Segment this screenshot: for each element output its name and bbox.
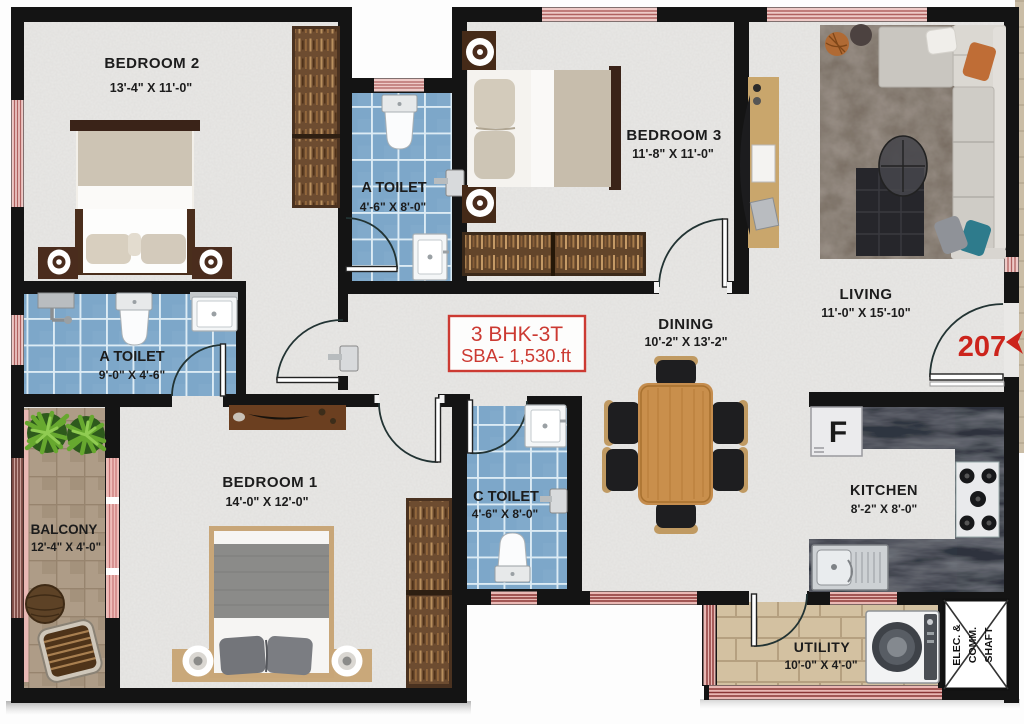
svg-text:BALCONY: BALCONY [31, 522, 98, 537]
svg-text:8'-2" X 8'-0": 8'-2" X 8'-0" [851, 502, 917, 516]
svg-text:SHAFT: SHAFT [983, 627, 995, 663]
svg-text:SBA- 1,530.ft: SBA- 1,530.ft [461, 345, 571, 366]
svg-text:4'-6" X 8'-0": 4'-6" X 8'-0" [360, 200, 426, 214]
svg-text:11'-8" X 11'-0": 11'-8" X 11'-0" [632, 147, 714, 161]
svg-text:F: F [829, 416, 847, 449]
svg-text:13'-4" X 11'-0": 13'-4" X 11'-0" [110, 81, 193, 95]
svg-text:C TOILET: C TOILET [473, 489, 539, 505]
svg-text:BEDROOM 3: BEDROOM 3 [626, 127, 721, 144]
svg-text:A TOILET: A TOILET [361, 180, 426, 196]
svg-text:BEDROOM 2: BEDROOM 2 [104, 55, 199, 72]
svg-text:DINING: DINING [658, 316, 714, 333]
svg-text:UTILITY: UTILITY [794, 639, 851, 655]
svg-text:ELEC. &: ELEC. & [951, 624, 963, 666]
svg-text:11'-0" X 15'-10": 11'-0" X 15'-10" [821, 306, 910, 320]
svg-text:207: 207 [958, 331, 1006, 363]
svg-text:10'-2" X 13'-2": 10'-2" X 13'-2" [644, 335, 727, 349]
svg-text:3 BHK-3T: 3 BHK-3T [471, 323, 563, 346]
svg-text:4'-6" X 8'-0": 4'-6" X 8'-0" [472, 507, 538, 521]
svg-text:10'-0" X 4'-0": 10'-0" X 4'-0" [784, 658, 857, 672]
svg-text:COMM.: COMM. [967, 627, 979, 663]
svg-text:12'-4" X 4'-0": 12'-4" X 4'-0" [31, 542, 101, 554]
svg-text:14'-0" X 12'-0": 14'-0" X 12'-0" [225, 495, 308, 509]
svg-text:BEDROOM 1: BEDROOM 1 [222, 474, 317, 491]
svg-text:LIVING: LIVING [839, 286, 892, 303]
svg-text:KITCHEN: KITCHEN [850, 483, 918, 499]
svg-text:A TOILET: A TOILET [99, 349, 164, 365]
svg-text:9'-0" X 4'-6": 9'-0" X 4'-6" [99, 368, 165, 382]
